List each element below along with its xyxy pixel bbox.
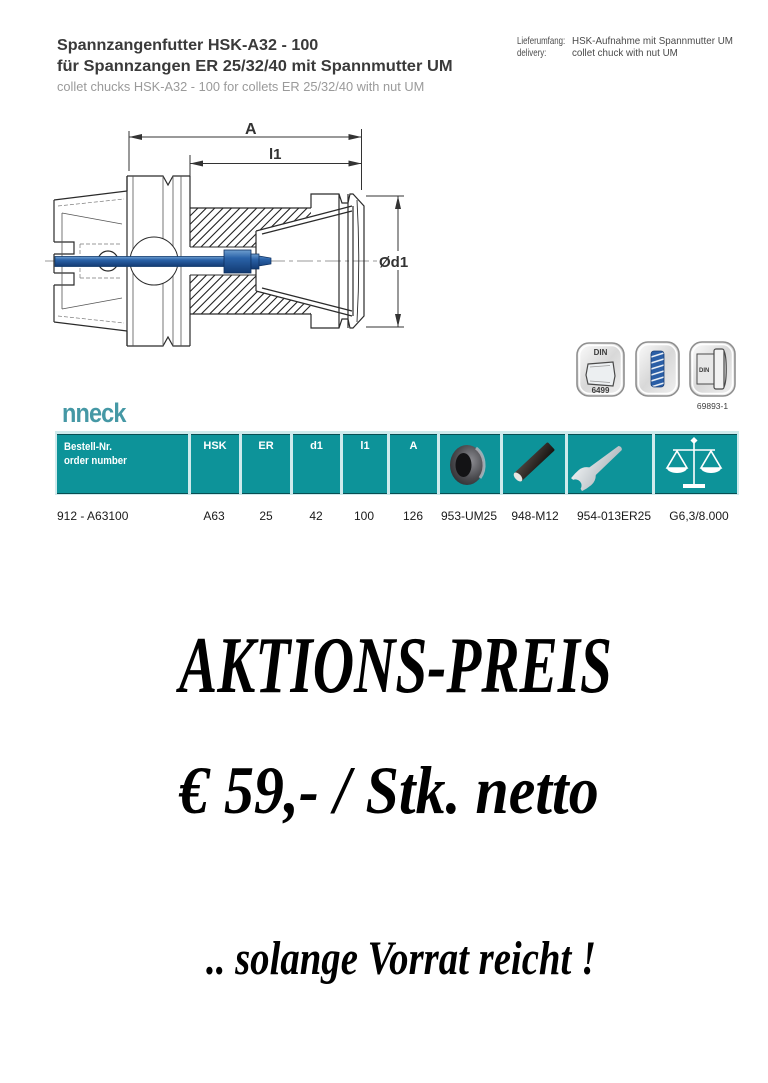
svg-text:DIN: DIN <box>699 368 709 374</box>
svg-text:DIN: DIN <box>594 348 608 357</box>
svg-text:6499: 6499 <box>592 386 610 395</box>
svg-text:A: A <box>245 121 257 138</box>
svg-text:Ød1: Ød1 <box>379 254 408 271</box>
svg-text:l1: l1 <box>269 146 282 163</box>
